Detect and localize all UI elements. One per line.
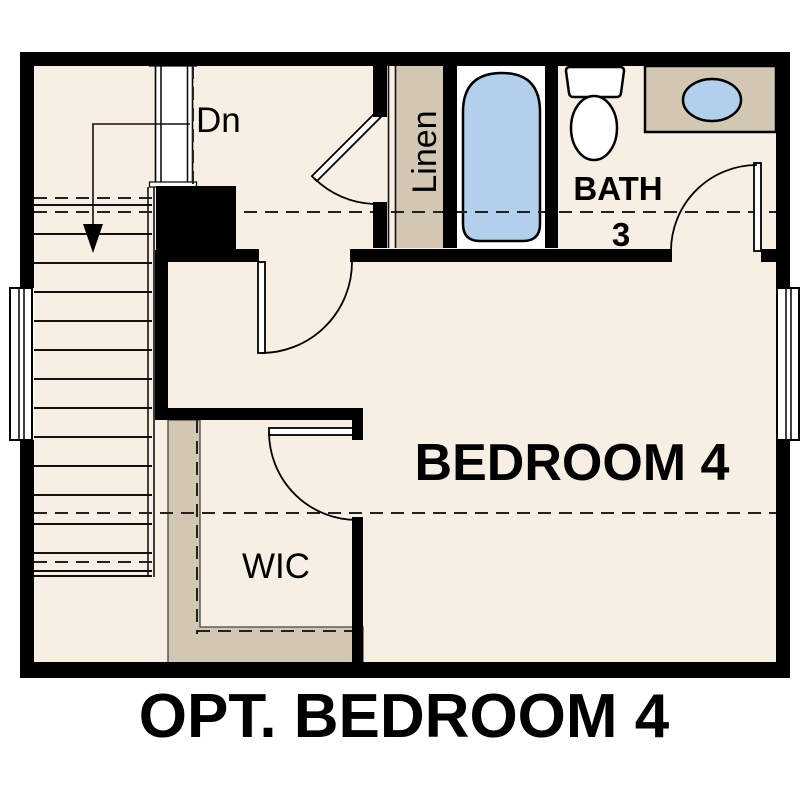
wall-linen-stub-bottom: [373, 202, 387, 248]
wall-right-lower: [776, 440, 790, 678]
floor-fills: [34, 66, 776, 663]
wall-wic-right: [352, 517, 363, 663]
wall-wic-top: [155, 408, 363, 420]
bathtub: [463, 73, 540, 241]
wic-label: WIC: [242, 547, 310, 586]
wall-bottom: [20, 662, 790, 678]
wall-tub-bath: [545, 66, 558, 248]
bedroom-label: BEDROOM 4: [415, 434, 730, 492]
wall-top: [20, 52, 790, 66]
window-right: [777, 288, 799, 440]
stairs-dn-label: Dn: [196, 101, 241, 140]
wall-bedroom-left: [155, 250, 168, 420]
linen-label: Linen: [406, 110, 444, 193]
bath-number-label: 3: [612, 216, 630, 253]
wall-hall-left: [156, 249, 259, 262]
wall-bath-door-stub: [761, 249, 790, 262]
floorplan-drawing: Dn Linen BATH 3 BEDROOM 4 WIC OPT. BEDRO…: [0, 0, 810, 810]
wall-linen-stub-top: [373, 66, 387, 117]
page-title: OPT. BEDROOM 4: [139, 682, 670, 751]
bath-label: BATH: [573, 170, 662, 207]
wall-wic-right-stub: [352, 408, 363, 440]
window-left: [10, 288, 32, 440]
wall-left-lower: [20, 440, 34, 678]
wall-linen-tub: [443, 66, 457, 248]
wall-left-upper: [20, 52, 34, 288]
sink-basin: [683, 79, 741, 121]
floorplan-page: Dn Linen BATH 3 BEDROOM 4 WIC OPT. BEDRO…: [0, 0, 810, 810]
